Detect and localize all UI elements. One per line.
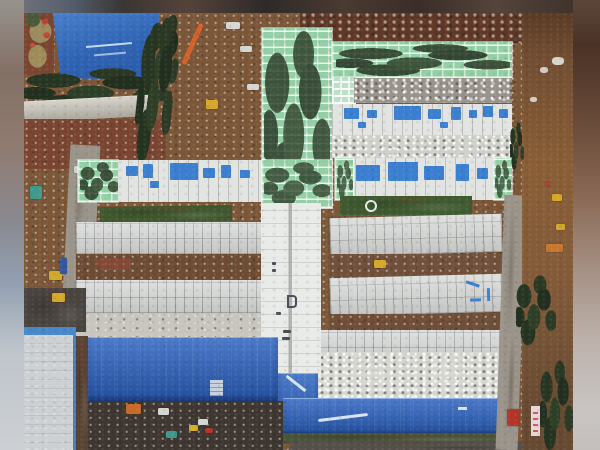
blue-panel [388,162,418,181]
yellow-machine-left [52,293,65,302]
blurred-edge-top [24,0,573,13]
blue-window [428,109,441,119]
blue-window [367,110,377,118]
row-trees [495,160,511,198]
ward-row-a-left [76,222,263,254]
right-earth-column [522,13,573,450]
top-wing-trees [336,44,510,76]
mud-yard [88,401,283,450]
row-trees [80,162,118,200]
white-truck-2 [226,22,240,29]
blue-window [451,107,461,120]
blue-panel [240,170,250,178]
blue-edge-strip [24,327,76,335]
blue-warehouse-left [88,337,278,401]
yellow-excavator-2 [206,100,218,109]
pink-banner [531,406,540,436]
blue-panel [150,181,159,188]
debris-slab-right [318,352,504,398]
spine-mark [272,262,276,265]
mottled-strip-left [76,313,263,338]
roof-skylight-panel [210,380,223,396]
ward-row-b-right [330,274,503,316]
blurred-edge-right [573,0,600,450]
field-lane-line-2 [94,52,126,57]
spine-mark [283,330,291,333]
right-window-row [335,158,512,200]
spine-mark [282,337,290,340]
orange-excavator [126,404,141,414]
colorful-ground-patch [24,13,54,75]
blue-site-office [60,258,67,274]
ward-row-a-right [330,214,503,256]
yellow-machine-mid [374,260,386,268]
row-trees [337,160,353,198]
white-paint-dash [458,407,467,410]
red-machine-small [205,428,213,433]
teal-machine [166,431,177,438]
concrete-slab-left [24,335,74,450]
gravel-band [354,78,512,103]
grass-strip-right [340,196,472,215]
spine-mark [272,269,276,272]
blue-window [344,108,359,119]
yellow-machine-r1 [552,194,562,201]
red-debris-patch [95,258,131,270]
blue-window [483,106,493,117]
blue-panel [143,164,153,178]
spine-bottom-trees [264,162,330,206]
blurred-edge-left [0,0,24,450]
blue-window [469,110,477,118]
blue-paint-mark [487,288,490,301]
white-truck-5 [158,408,169,415]
grass-strip-left [100,205,232,223]
white-truck-3 [240,46,252,52]
green-cells-band [332,77,356,104]
ward-row-b-left [76,280,263,313]
blue-window [358,122,366,128]
yellow-machine-2 [189,425,198,431]
blue-paint-mark [466,280,480,287]
red-machine-right [507,409,519,426]
white-ring-tank [365,200,377,212]
yellow-machine-r2 [556,224,565,230]
spine-mark-d [287,295,297,308]
blue-warehouse-long [283,398,504,435]
red-dot-machine [545,182,550,186]
white-truck-4 [247,84,259,90]
blue-paint-mark [470,298,481,301]
white-paint-dash [286,375,307,392]
orange-truck [546,244,563,252]
spine-mark [276,312,281,315]
blue-panel [126,166,138,176]
white-debris [540,67,548,73]
blue-panel [170,163,198,180]
blue-panel [203,168,215,178]
blue-window [440,122,448,128]
right-trees-mid [516,275,556,345]
blue-panel [424,166,444,180]
blue-panel [221,165,231,178]
upper-window-band [332,104,512,135]
dirt-gap-left [76,336,88,450]
left-window-row [78,160,264,202]
white-debris [552,57,564,65]
dirt-strip-b-right [330,314,502,330]
teal-shed [30,186,42,199]
white-debris [530,97,537,102]
right-trees-bottom [540,360,573,450]
trees-east-of-complex [510,122,524,170]
blue-panel [477,168,488,179]
white-rubble-band [332,135,512,158]
white-painted-stripe [318,413,368,422]
blue-panel [356,165,380,181]
field-lane-line [86,42,132,48]
blue-window [499,109,508,118]
aerial-photo [0,0,600,450]
white-truck-6 [198,419,208,425]
blue-window [394,106,421,120]
blue-panel [456,164,469,181]
